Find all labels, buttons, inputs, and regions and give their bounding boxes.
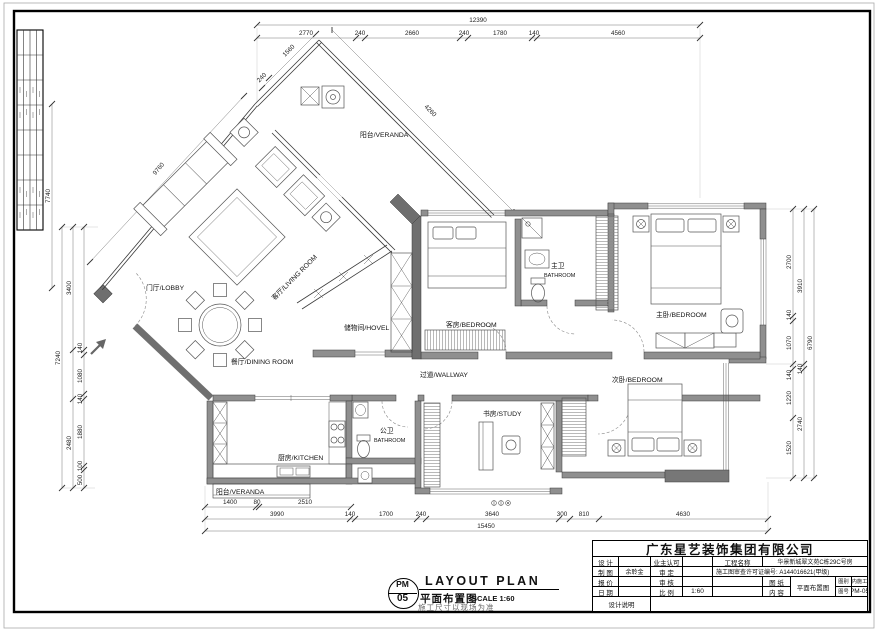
room-label-guest: 客房/BEDROOM bbox=[446, 320, 497, 329]
dim: 2770 bbox=[299, 30, 314, 37]
tb-project-value: 华景新城翠文苑C栋29C号房 bbox=[763, 557, 867, 567]
sheet-title-en: LAYOUT PLAN bbox=[425, 574, 575, 588]
sheet-title-underline bbox=[419, 589, 559, 590]
drawing-sheet: 12390 2770 240 2660 240 1780 140 4560 14… bbox=[0, 0, 878, 632]
room-label-veranda-bottom: 阳台/VERANDA bbox=[216, 487, 265, 496]
dim: 240 bbox=[459, 30, 470, 37]
tb-check-value bbox=[683, 577, 713, 587]
tb-note-value bbox=[651, 597, 867, 611]
room-label-veranda-top: 阳台/VERANDA bbox=[360, 130, 409, 139]
dim: 4630 bbox=[676, 511, 691, 518]
sheet-stamp: PM 05 LAYOUT PLAN 平面布置图 SCALE 1:60 施工尺寸以… bbox=[386, 572, 586, 614]
room-label-master: 主卧/BEDROOM bbox=[656, 310, 707, 319]
dim: 810 bbox=[579, 511, 590, 518]
tb-quote-label: 报 价 bbox=[593, 577, 619, 587]
dim: 2740 bbox=[797, 417, 804, 432]
sheet-code-number: 05 bbox=[388, 593, 417, 604]
lobby-door-arc bbox=[135, 272, 146, 326]
dim: 1560 bbox=[282, 43, 297, 58]
tb-permit: 施工图审查许可证编号: A144016621(甲级) bbox=[713, 567, 867, 577]
dim: 1070 bbox=[786, 336, 793, 351]
sheet-frame bbox=[4, 3, 874, 628]
dim-top-total: 12390 bbox=[469, 17, 487, 24]
tb-blank-2 bbox=[713, 587, 763, 597]
dim: 1400 bbox=[223, 499, 238, 506]
dim: 2510 bbox=[298, 499, 313, 506]
tb-check-label: 审 核 bbox=[651, 577, 683, 587]
dim: 240 bbox=[355, 30, 366, 37]
dim: 140 bbox=[529, 30, 540, 37]
room-label-study: 书房/STUDY bbox=[483, 409, 522, 418]
dim: 3640 bbox=[485, 511, 500, 518]
dim: 2660 bbox=[405, 30, 420, 37]
dim: 1700 bbox=[379, 511, 394, 518]
dim: 1080 bbox=[77, 369, 84, 384]
pbath-door-arc bbox=[382, 401, 408, 427]
dim: 1880 bbox=[77, 425, 84, 440]
guest-bed bbox=[425, 222, 506, 350]
room-label-storage: 储物间/HOVEL bbox=[344, 323, 390, 332]
mbath-door-arc bbox=[547, 306, 575, 334]
tb-scale-value: 1:60 bbox=[683, 587, 713, 597]
dim: 140 bbox=[345, 511, 356, 518]
dim: 140 bbox=[786, 369, 793, 380]
tb-num-label: 图号 bbox=[836, 587, 852, 597]
public-bath-fixtures bbox=[353, 402, 372, 483]
binding-strip bbox=[17, 30, 43, 230]
tb-quote-value bbox=[619, 577, 651, 587]
dim: 500 bbox=[77, 474, 84, 485]
room-label-kitchen: 厨房/KITCHEN bbox=[278, 453, 323, 462]
dim: 3400 bbox=[66, 281, 73, 296]
tb-owner-value bbox=[683, 557, 713, 567]
dim: 80 bbox=[253, 499, 261, 506]
dim: 140 bbox=[77, 393, 84, 404]
kitchen-fixtures bbox=[213, 402, 346, 478]
tb-sheet-label: 图 纸 bbox=[763, 577, 791, 587]
tb-num-value: PM-05 bbox=[852, 587, 867, 597]
room-label-pbath: 公卫 bbox=[380, 427, 394, 435]
dim: 3990 bbox=[270, 511, 285, 518]
dim: 240 bbox=[416, 511, 427, 518]
room-label-mbath-en: BATHROOM bbox=[544, 273, 576, 279]
tb-date-label: 日 期 bbox=[593, 587, 619, 597]
tb-sheet-value: 平面布置图 bbox=[791, 577, 836, 597]
tb-content-label: 内 容 bbox=[763, 587, 791, 597]
tb-project-label: 工程名称 bbox=[713, 557, 763, 567]
dim: 3910 bbox=[797, 279, 804, 294]
tb-approve-value bbox=[683, 567, 713, 577]
veranda-appliances bbox=[301, 86, 344, 108]
company-name: 广东星艺装饰集团有限公司 bbox=[593, 541, 867, 557]
dim: 9760 bbox=[152, 161, 167, 177]
tb-design-value bbox=[619, 557, 651, 567]
room-label-dining: 餐厅/DINING ROOM bbox=[231, 357, 294, 366]
dim: 4560 bbox=[611, 30, 626, 37]
tb-draft-value: 余聆金 bbox=[619, 567, 651, 577]
master-door-arc bbox=[612, 320, 644, 352]
bed2-door-arc-left bbox=[598, 401, 631, 434]
dim: 140 bbox=[797, 363, 804, 374]
dim: 300 bbox=[557, 511, 568, 518]
room-label-living: 客厅/LIVING ROOM bbox=[270, 252, 320, 302]
tb-scale-label: 比 例 bbox=[651, 587, 683, 597]
dim: 6790 bbox=[807, 336, 814, 351]
tb-approve-label: 审 定 bbox=[651, 567, 683, 577]
master-bed bbox=[596, 214, 743, 348]
dim: 140 bbox=[77, 342, 84, 353]
dim: 4260 bbox=[423, 104, 438, 119]
dim: 7240 bbox=[55, 351, 62, 366]
floor-plan-canvas: 12390 2770 240 2660 240 1780 140 4560 14… bbox=[0, 0, 878, 632]
switch-symbols bbox=[492, 501, 511, 506]
sheet-code-prefix: PM bbox=[388, 579, 417, 589]
room-label-pbath-en: BATHROOM bbox=[374, 438, 406, 444]
dim: 140 bbox=[786, 309, 793, 320]
tb-owner-label: 业主认可 bbox=[651, 557, 683, 567]
dim-bottom-total: 15450 bbox=[477, 523, 495, 530]
tb-date-value bbox=[619, 587, 651, 597]
tb-draft-label: 制 图 bbox=[593, 567, 619, 577]
tb-cat-label: 图别 bbox=[836, 577, 852, 587]
room-label-mbath: 主卫 bbox=[551, 261, 565, 270]
tb-note-label: 设计说明 bbox=[593, 597, 651, 611]
dining-set bbox=[179, 284, 262, 367]
title-block: 广东星艺装饰集团有限公司 设 计 业主认可 工程名称 华景新城翠文苑C栋29C号… bbox=[592, 540, 868, 612]
room-label-hall: 过道/WALLWAY bbox=[420, 370, 468, 379]
dim: 100 bbox=[77, 460, 84, 471]
room-label-second: 次卧/BEDROOM bbox=[612, 375, 663, 384]
dim: 2480 bbox=[66, 436, 73, 451]
dim: 1520 bbox=[786, 441, 793, 456]
dim: 1220 bbox=[786, 391, 793, 406]
sheet-note: 施工尺寸以现场为准 bbox=[418, 602, 495, 613]
room-label-lobby: 门厅/LOBBY bbox=[146, 283, 185, 292]
dim: 7740 bbox=[45, 189, 52, 204]
dim: 2700 bbox=[786, 255, 793, 270]
dim: 240 bbox=[256, 71, 269, 84]
tb-cat-value: 室内施工图 bbox=[852, 577, 867, 587]
dim: 1780 bbox=[493, 30, 508, 37]
entry-arrow bbox=[91, 339, 106, 354]
master-bath-fixtures bbox=[522, 218, 549, 302]
tb-design-label: 设 计 bbox=[593, 557, 619, 567]
tb-blank-1 bbox=[713, 577, 763, 587]
